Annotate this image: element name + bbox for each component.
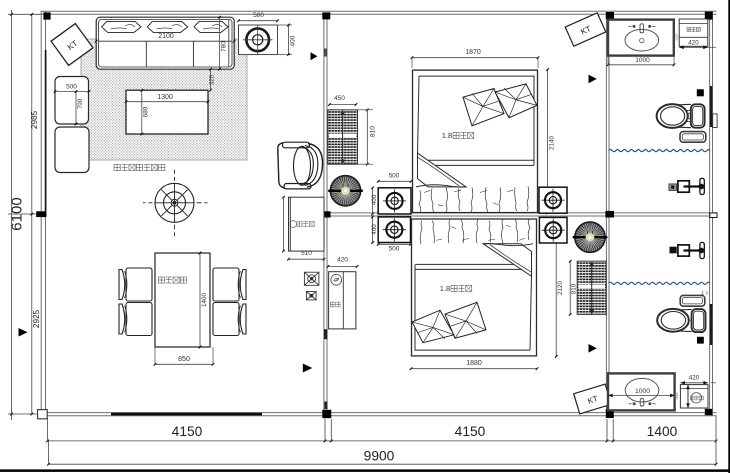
svg-text:2140: 2140 xyxy=(549,136,556,151)
svg-text:6100: 6100 xyxy=(9,197,26,230)
svg-text:325: 325 xyxy=(674,33,679,41)
svg-text:420: 420 xyxy=(337,257,348,264)
svg-text:400: 400 xyxy=(371,194,378,205)
svg-text:325: 325 xyxy=(674,392,679,400)
svg-text:450: 450 xyxy=(334,95,345,102)
svg-text:500: 500 xyxy=(66,84,77,91)
svg-text:400: 400 xyxy=(290,35,297,46)
svg-text:1400: 1400 xyxy=(647,424,678,439)
svg-text:4150: 4150 xyxy=(455,424,486,439)
svg-text:4150: 4150 xyxy=(172,424,203,439)
svg-text:420: 420 xyxy=(688,40,699,47)
svg-text:850: 850 xyxy=(178,356,190,363)
svg-text:1870: 1870 xyxy=(465,49,481,56)
svg-text:1880: 1880 xyxy=(466,360,482,367)
svg-text:400: 400 xyxy=(371,224,378,235)
svg-text:780: 780 xyxy=(221,41,228,52)
svg-text:580: 580 xyxy=(253,12,264,19)
svg-text:1000: 1000 xyxy=(635,388,650,395)
svg-text:810: 810 xyxy=(370,126,377,137)
svg-text:2985: 2985 xyxy=(30,110,39,129)
svg-text:810: 810 xyxy=(571,283,578,294)
svg-text:9900: 9900 xyxy=(364,449,395,464)
svg-text:320: 320 xyxy=(210,74,216,85)
svg-text:700: 700 xyxy=(77,98,84,109)
svg-text:500: 500 xyxy=(389,173,400,180)
svg-text:680: 680 xyxy=(143,106,150,117)
svg-text:1300: 1300 xyxy=(157,94,173,101)
svg-text:510: 510 xyxy=(301,250,312,257)
svg-text:2100: 2100 xyxy=(158,33,174,40)
svg-text:500: 500 xyxy=(389,246,400,253)
svg-text:1.8: 1.8 xyxy=(440,284,450,293)
svg-text:2120: 2120 xyxy=(557,281,564,296)
svg-text:2925: 2925 xyxy=(32,309,41,328)
svg-text:420: 420 xyxy=(689,375,700,382)
svg-text:1000: 1000 xyxy=(635,57,650,64)
svg-text:1.8: 1.8 xyxy=(442,131,452,140)
svg-text:1400: 1400 xyxy=(201,293,208,308)
